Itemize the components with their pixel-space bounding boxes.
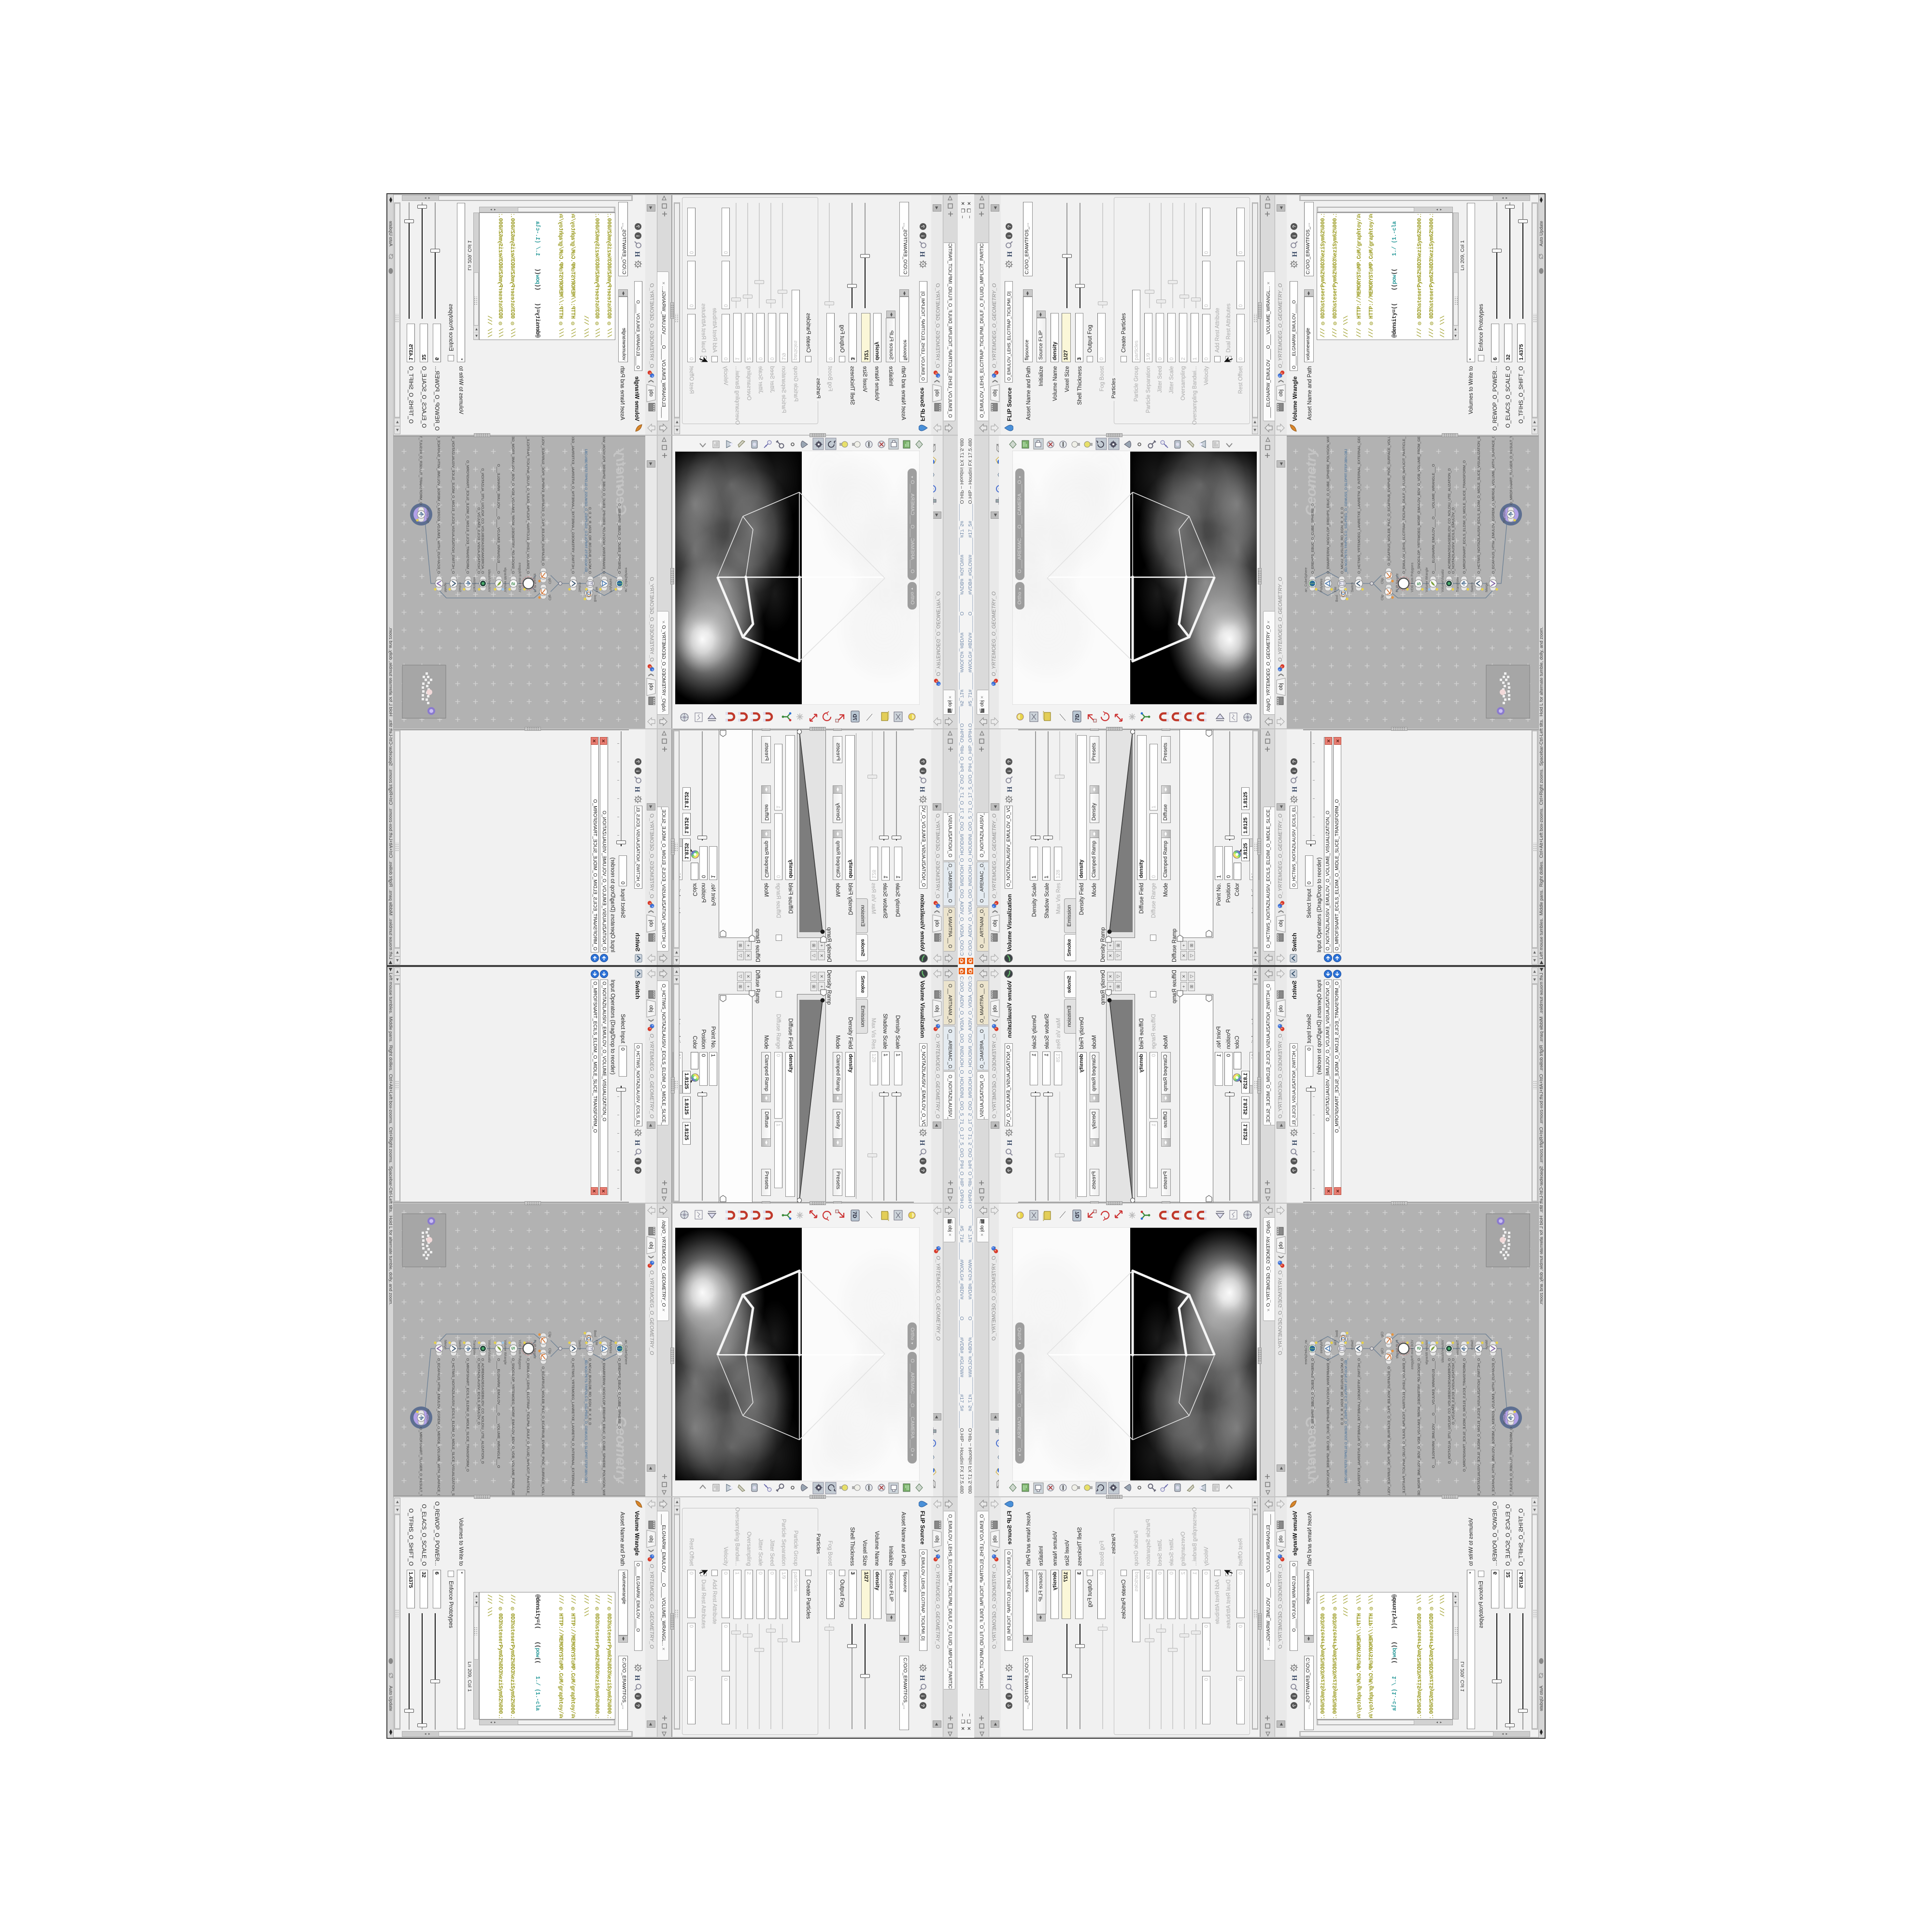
svg-text:Clip: Clip	[548, 1348, 551, 1354]
svg-text:O_HCTIWS_YRTEMOEG_LANRETXE_LAN: O_HCTIWS_YRTEMOEG_LANRETXE_LANRETNI_O_IN…	[1357, 1358, 1361, 1495]
svg-text:Bool: Bool	[593, 1330, 597, 1337]
svg-text:Transform: Transform	[426, 508, 429, 523]
svg-text:obj: obj	[648, 920, 654, 927]
svg-text:obj: obj	[648, 1535, 654, 1543]
svg-text:Merge: Merge	[1485, 582, 1489, 592]
svg-text:PolyWire: PolyWire	[1320, 1340, 1323, 1353]
svg-text:i: i	[1007, 1695, 1012, 1697]
svg-text:Switch: Switch	[578, 1340, 581, 1350]
svg-text:?: ?	[1292, 760, 1297, 763]
svg-text:O_MROFSNART_ECILS_ELDIM_O_MIDL: O_MROFSNART_ECILS_ELDIM_O_MIDLE_SLICE_TR…	[466, 460, 470, 574]
svg-text:O_NOITAZILAUSIV_ECILS_EMULOV_O: O_NOITAZILAUSIV_ECILS_EMULOV_O	[477, 507, 481, 574]
svg-text:H: H	[1006, 1675, 1014, 1681]
svg-text:O_ECAFRUS_WOLEB_PILC_O_ECAFRUB: O_ECAFRUS_WOLEB_PILC_O_ECAFRUB_EVRPVE_PI…	[1387, 437, 1391, 566]
svg-text:O_SNOGILOP_YRTEMOEG_MORF_EMULO: O_SNOGILOP_YRTEMOEG_MORF_EMULOV_BDV_O_VD…	[1417, 437, 1421, 574]
svg-text:H: H	[918, 786, 926, 792]
svg-text:i: i	[1292, 1695, 1297, 1697]
svg-text:obj: obj	[1278, 920, 1284, 927]
svg-text:?: ?	[1007, 225, 1012, 228]
svg-text:H: H	[633, 251, 641, 257]
svg-text:O_ECAFRUS_WOLEB_PILC_O_ECAFRUB: O_ECAFRUS_WOLEB_PILC_O_ECAFRUB_EVRPVE_PI…	[1387, 1366, 1391, 1495]
svg-text:H: H	[633, 1675, 641, 1681]
svg-text:?: ?	[635, 225, 640, 228]
svg-text:Switch: Switch	[1351, 582, 1354, 592]
svg-text:_BD.NO3.PETS.TRIPOLS.O_SSLPREG: _BD.NO3.PETS.TRIPOLS.O_SSLPREG_O_GEMUSS_…	[1345, 1358, 1348, 1483]
svg-text:VolumeVisualiz: VolumeVisualiz	[1441, 1340, 1445, 1363]
svg-text:an_CubeSphere: an_CubeSphere	[624, 1340, 627, 1364]
svg-text:?: ?	[1007, 1704, 1012, 1707]
svg-text:O_EREHPS_EBUC_O_CUBE_SPHERE_O: O_EREHPS_EBUC_O_CUBE_SPHERE_O	[617, 1358, 622, 1429]
svg-text:Switch: Switch	[1471, 1340, 1474, 1350]
svg-text:i: i	[1007, 1160, 1012, 1162]
svg-text:Transform: Transform	[472, 1340, 476, 1355]
svg-text:O_ECAFRUS_WOLEB_PILC_O_ECAFRUB: O_ECAFRUS_WOLEB_PILC_O_ECAFRUB_EVRPVE_PI…	[541, 1366, 545, 1495]
svg-text:i: i	[1292, 235, 1297, 237]
svg-text:O_EREHPS_EBUC_O_CUBE_SPHERE_O: O_EREHPS_EBUC_O_CUBE_SPHERE_O	[1310, 503, 1315, 574]
svg-text:O_HCTIWS_NOITAZILAUSIV_ECILS_E: O_HCTIWS_NOITAZILAUSIV_ECILS_ELDIM_O_MID…	[1477, 437, 1481, 574]
svg-text:O_EMULOV_LEHS_ELCITRAP_TICILPM: O_EMULOV_LEHS_ELCITRAP_TICILPMI_DIULF_O_…	[1402, 437, 1406, 574]
svg-text:PolyWire: PolyWire	[1320, 579, 1323, 592]
svg-text:O_SNOGILOP_YRTEMOEG_MORF_EMULO: O_SNOGILOP_YRTEMOEG_MORF_EMULOV_BDV_O_VD…	[511, 437, 515, 574]
svg-text:O_EMARFERIW_NOGYLOP_EREHPS_EBU: O_EMARFERIW_NOGYLOP_EREHPS_EBUC_O_CUBE_S…	[602, 437, 606, 574]
svg-text:Switch: Switch	[458, 582, 461, 592]
svg-text:an_CubeSphere: an_CubeSphere	[624, 568, 627, 592]
svg-text:H: H	[633, 786, 641, 792]
svg-text:O_EMULOV_LEHS_ELCITRAP_TICILPM: O_EMULOV_LEHS_ELCITRAP_TICILPMI_DIULF_O_…	[526, 437, 530, 574]
svg-text:O_MCxU_BUSLDB_RD_EGN_R_X_D_D: O_MCxU_BUSLDB_RD_EGN_R_X_D_D	[1340, 507, 1344, 574]
svg-text:O____ELGNARW_EMULOV____O____VO: O____ELGNARW_EMULOV____O____VOLUME_WRANG…	[497, 1358, 501, 1468]
svg-text:obj: obj	[934, 1005, 940, 1012]
svg-text:O_SNOGILOP_YRTEMOEG_MORF_EMULO: O_SNOGILOP_YRTEMOEG_MORF_EMULOV_BDV_O_VD…	[511, 1358, 515, 1495]
svg-text:7D: 7D	[852, 1211, 857, 1218]
svg-text:obj: obj	[934, 1535, 940, 1543]
svg-text:H: H	[918, 251, 926, 257]
svg-text:i: i	[635, 235, 640, 237]
svg-text:?: ?	[1292, 225, 1297, 228]
svg-text:Transform: Transform	[1456, 577, 1460, 592]
svg-text:Switch: Switch	[578, 582, 581, 592]
svg-text:File: File	[1334, 1340, 1337, 1345]
svg-text:O_HCTIWS_NOITAZILAUSIV_ECILS_E: O_HCTIWS_NOITAZILAUSIV_ECILS_ELDIM_O_MID…	[1477, 1358, 1481, 1495]
svg-text:7D: 7D	[1075, 714, 1080, 721]
svg-text:_BD.NO3.PETS.TRIPOLS.O_SSLPREG: _BD.NO3.PETS.TRIPOLS.O_SSLPREG_O_GEMUSS_…	[584, 449, 587, 574]
svg-text:Clip: Clip	[1381, 578, 1384, 584]
svg-text:VolumeVisualiz: VolumeVisualiz	[487, 1340, 491, 1363]
svg-text:i: i	[920, 235, 925, 237]
svg-text:obj: obj	[992, 920, 998, 927]
svg-text:O____ELGNARW_EMULOV____O____VO: O____ELGNARW_EMULOV____O____VOLUME_WRANG…	[497, 464, 501, 574]
svg-text:O____ELGNARW_EMULOV____O____VO: O____ELGNARW_EMULOV____O____VOLUME_WRANG…	[1431, 1358, 1435, 1468]
svg-text:i: i	[920, 770, 925, 772]
svg-text:Clip: Clip	[548, 1332, 551, 1337]
svg-text:S: S	[510, 582, 515, 585]
svg-text:Volume Wrangle: Volume Wrangle	[1425, 1340, 1429, 1364]
svg-text:VolumeVisualiz: VolumeVisualiz	[487, 569, 491, 592]
svg-text:obj: obj	[1278, 683, 1284, 690]
svg-text:Clip: Clip	[1381, 1332, 1384, 1337]
svg-text:Volume Wrangle: Volume Wrangle	[503, 1340, 507, 1364]
svg-text:i: i	[635, 1160, 640, 1162]
svg-text:O_EREHPS_EBUC_O_CUBE_SPHERE_O: O_EREHPS_EBUC_O_CUBE_SPHERE_O	[1310, 1358, 1315, 1429]
svg-text:O_MROFSNART_ECILS_ELDIM_O_MIDL: O_MROFSNART_ECILS_ELDIM_O_MIDLE_SLICE_TR…	[1462, 1358, 1466, 1472]
svg-text:O_HCTIWS_YRTEMOEG_LANRETXE_LAN: O_HCTIWS_YRTEMOEG_LANRETXE_LANRETNI_O_IN…	[1357, 437, 1361, 574]
svg-text:?: ?	[635, 1169, 640, 1172]
svg-text:?: ?	[920, 760, 925, 763]
svg-text:Switch: Switch	[1351, 1340, 1354, 1350]
svg-text:O_MCxU_BUSLDB_RD_EGN_R_X_D_D: O_MCxU_BUSLDB_RD_EGN_R_X_D_D	[588, 1358, 592, 1425]
svg-text:Merge: Merge	[1485, 1340, 1489, 1350]
svg-text:S: S	[510, 1347, 515, 1350]
svg-text:File: File	[595, 1340, 598, 1345]
svg-text:H: H	[1006, 251, 1014, 257]
svg-text:H: H	[1006, 1140, 1014, 1146]
svg-text:i: i	[920, 1160, 925, 1162]
svg-text:H: H	[918, 1140, 926, 1146]
svg-text:Transform: Transform	[1503, 1409, 1506, 1424]
svg-text:Merge: Merge	[443, 582, 447, 592]
svg-text:?: ?	[1007, 1169, 1012, 1172]
svg-text:O_MROFSNART_ECILS_ELDIM_O_MIDL: O_MROFSNART_ECILS_ELDIM_O_MIDLE_SLICE_TR…	[1462, 460, 1466, 574]
svg-text:obj: obj	[1278, 1005, 1284, 1012]
svg-text:i: i	[1007, 770, 1012, 772]
svg-text:Switch: Switch	[1471, 582, 1474, 592]
svg-text:O____ELGNARW_EMULOV____O____VO: O____ELGNARW_EMULOV____O____VOLUME_WRANG…	[1431, 464, 1435, 574]
svg-text:O_EREHPS_EBUC_O_CUBE_SPHERE_O: O_EREHPS_EBUC_O_CUBE_SPHERE_O	[617, 503, 622, 574]
svg-text:O_ECAFRUS_WOLEB_PILC_O_ECAFRUB: O_ECAFRUS_WOLEB_PILC_O_ECAFRUB_EVRPVE_PI…	[541, 437, 545, 566]
svg-text:VDB from Polygons: VDB from Polygons	[518, 1340, 521, 1370]
svg-text:obj: obj	[648, 683, 654, 690]
svg-text:i: i	[1292, 770, 1297, 772]
svg-text:File: File	[595, 587, 598, 592]
svg-text:Transform: Transform	[472, 577, 476, 592]
svg-text:i: i	[920, 1695, 925, 1697]
svg-text:O_EMULOV_LEHS_ELCITRAP_TICILPM: O_EMULOV_LEHS_ELCITRAP_TICILPMI_DIULF_O_…	[1402, 1358, 1406, 1495]
svg-text:obj: obj	[648, 1005, 654, 1012]
svg-text:Clip: Clip	[548, 578, 551, 584]
svg-text:obj: obj	[992, 1005, 998, 1012]
svg-text:i: i	[1292, 1160, 1297, 1162]
svg-text:H: H	[1291, 1675, 1299, 1681]
svg-text:File: File	[1334, 587, 1337, 592]
svg-text:obj: obj	[1278, 389, 1284, 397]
svg-text:H: H	[1291, 1140, 1299, 1146]
svg-text:?: ?	[920, 1169, 925, 1172]
svg-text:an_CubeSphere: an_CubeSphere	[1305, 568, 1308, 592]
svg-text:Clip: Clip	[548, 595, 551, 600]
svg-text:?: ?	[1292, 1169, 1297, 1172]
svg-text:PolyWire: PolyWire	[609, 1340, 612, 1353]
svg-text:7D: 7D	[1075, 1211, 1080, 1218]
svg-text:H: H	[633, 1140, 641, 1146]
svg-text:VolumeVisualiz: VolumeVisualiz	[1441, 569, 1445, 592]
svg-text:O_HCTIWS_NOITAZILAUSIV_ECILS_E: O_HCTIWS_NOITAZILAUSIV_ECILS_ELDIM_O_MID…	[451, 437, 455, 574]
svg-text:FLIP Source: FLIP Source	[1396, 1340, 1399, 1359]
svg-text:7D: 7D	[852, 714, 857, 721]
svg-text:obj: obj	[1278, 1242, 1284, 1249]
svg-text:obj: obj	[648, 389, 654, 397]
svg-text:?: ?	[635, 760, 640, 763]
svg-text:?: ?	[920, 225, 925, 228]
svg-text:_BD.NO3.PETS.TRIPOLS.O_SSLPREG: _BD.NO3.PETS.TRIPOLS.O_SSLPREG_O_GEMUSS_…	[1345, 449, 1348, 574]
svg-text:Merge: Merge	[443, 1340, 447, 1350]
svg-text:Volume Wrangle: Volume Wrangle	[1425, 568, 1429, 592]
svg-text:O_EMARFERIW_NOGYLOP_EREHPS_EBU: O_EMARFERIW_NOGYLOP_EREHPS_EBUC_O_CUBE_S…	[1326, 437, 1330, 574]
svg-text:Transform: Transform	[426, 1409, 429, 1424]
svg-text:obj: obj	[992, 1535, 998, 1543]
svg-text:O_EMARFERIW_NOGYLOP_EREHPS_EBU: O_EMARFERIW_NOGYLOP_EREHPS_EBUC_O_CUBE_S…	[1326, 1358, 1330, 1495]
svg-text:obj: obj	[934, 920, 940, 927]
svg-text:O_SNOGILOP_YRTEMOEG_MORF_EMULO: O_SNOGILOP_YRTEMOEG_MORF_EMULOV_BDV_O_VD…	[1417, 1358, 1421, 1495]
svg-text:Volume Wrangle: Volume Wrangle	[503, 568, 507, 592]
svg-text:FLIP Source: FLIP Source	[1396, 573, 1399, 592]
svg-text:O_NOITAZILAUSIV_ECILS_EMULOV_O: O_NOITAZILAUSIV_ECILS_EMULOV_O	[1451, 1358, 1455, 1425]
svg-text:FLIP Source: FLIP Source	[533, 573, 536, 592]
svg-text:obj: obj	[648, 1242, 654, 1249]
svg-text:O_HCTIWS_YRTEMOEG_LANRETXE_LAN: O_HCTIWS_YRTEMOEG_LANRETXE_LANRETNI_O_IN…	[571, 437, 575, 574]
svg-text:O_HCTIWS_NOITAZILAUSIV_ECILS_E: O_HCTIWS_NOITAZILAUSIV_ECILS_ELDIM_O_MID…	[451, 1358, 455, 1495]
svg-text:O_NOITAZILAUSIV_ECILS_EMULOV_O: O_NOITAZILAUSIV_ECILS_EMULOV_O	[1451, 507, 1455, 574]
svg-text:_BD.NO3.PETS.TRIPOLS.O_SSLPREG: _BD.NO3.PETS.TRIPOLS.O_SSLPREG_O_GEMUSS_…	[584, 1358, 587, 1483]
svg-text:Clip: Clip	[1381, 1348, 1384, 1354]
svg-text:?: ?	[920, 1704, 925, 1707]
svg-text:O_EMULOV_LEHS_ELCITRAP_TICILPM: O_EMULOV_LEHS_ELCITRAP_TICILPMI_DIULF_O_…	[526, 1358, 530, 1495]
svg-text:?: ?	[1007, 760, 1012, 763]
svg-text:H: H	[1006, 786, 1014, 792]
svg-text:Clip: Clip	[1381, 595, 1384, 600]
svg-text:PolyWire: PolyWire	[609, 579, 612, 592]
svg-text:VDB from Polygons: VDB from Polygons	[1411, 562, 1414, 592]
svg-text:O_ACIREMAOEGASEBILIDV_CO_NOLDI: O_ACIREMAOEGASEBILIDV_CO_NOLDIU_UTE_ALIZ…	[481, 1358, 485, 1464]
svg-text:O_EMARFERIW_NOGYLOP_EREHPS_EBU: O_EMARFERIW_NOGYLOP_EREHPS_EBUC_O_CUBE_S…	[602, 1358, 606, 1495]
svg-text:an_CubeSphere: an_CubeSphere	[1305, 1340, 1308, 1364]
svg-text:H: H	[918, 1675, 926, 1681]
svg-text:O_MROFSNART_ECILS_ELDIM_O_MIDL: O_MROFSNART_ECILS_ELDIM_O_MIDLE_SLICE_TR…	[466, 1358, 470, 1472]
svg-text:Bool: Bool	[1335, 595, 1339, 602]
svg-text:obj: obj	[992, 389, 998, 397]
svg-text:O_NOITAZILAUSIV_ECILS_EMULOV_O: O_NOITAZILAUSIV_ECILS_EMULOV_O	[477, 1358, 481, 1425]
svg-text:i: i	[1007, 235, 1012, 237]
svg-text:S: S	[1417, 582, 1422, 585]
svg-text:VDB from Polygons: VDB from Polygons	[1411, 1340, 1414, 1370]
svg-text:H: H	[1291, 786, 1299, 792]
svg-text:Switch: Switch	[458, 1340, 461, 1350]
svg-text:S: S	[1417, 1347, 1422, 1350]
svg-text:O_HCTIWS_YRTEMOEG_LANRETXE_LAN: O_HCTIWS_YRTEMOEG_LANRETXE_LANRETNI_O_IN…	[571, 1358, 575, 1495]
svg-text:obj: obj	[1278, 1535, 1284, 1543]
svg-text:FLIP Source: FLIP Source	[533, 1340, 536, 1359]
svg-text:VDB from Polygons: VDB from Polygons	[518, 562, 521, 592]
svg-text:H: H	[1291, 251, 1299, 257]
svg-text:Transform: Transform	[1503, 508, 1506, 523]
svg-text:O_ACIREMAOEGASEBILIDV_CO_NOLDI: O_ACIREMAOEGASEBILIDV_CO_NOLDIU_UTE_ALIZ…	[481, 468, 485, 574]
svg-text:obj: obj	[934, 389, 940, 397]
svg-text:?: ?	[635, 1704, 640, 1707]
svg-text:O_MCxU_BUSLDB_RD_EGN_R_X_D_D: O_MCxU_BUSLDB_RD_EGN_R_X_D_D	[1340, 1358, 1344, 1425]
svg-text:?: ?	[1292, 1704, 1297, 1707]
svg-text:Bool: Bool	[593, 595, 597, 602]
svg-text:O_MCxU_BUSLDB_RD_EGN_R_X_D_D: O_MCxU_BUSLDB_RD_EGN_R_X_D_D	[588, 507, 592, 574]
svg-text:Bool: Bool	[1335, 1330, 1339, 1337]
svg-text:Transform: Transform	[1456, 1340, 1460, 1355]
svg-text:i: i	[635, 1695, 640, 1697]
svg-text:i: i	[635, 770, 640, 772]
